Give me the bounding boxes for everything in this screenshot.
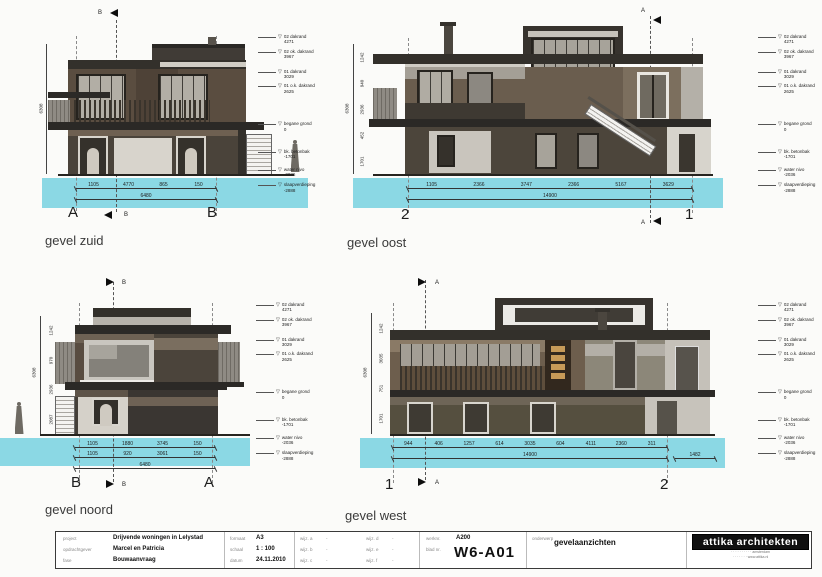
rev-f-value: - — [392, 558, 394, 563]
vertical-dim-line — [353, 44, 354, 174]
rev-f-label: wijz. f — [366, 558, 377, 563]
level-mark-icon: ▽ — [778, 83, 782, 89]
overall-height-dim: 6308 — [345, 103, 350, 113]
level-value: -2036 — [282, 440, 326, 445]
floor-slab — [65, 382, 227, 390]
worknr-value: A200 — [456, 535, 470, 541]
level-mark-icon: ▽ — [778, 317, 782, 323]
leader-line — [256, 320, 274, 321]
chimney — [208, 37, 216, 45]
level-annotation-row: ▽ begane grond0 — [256, 389, 326, 400]
leader-line — [758, 420, 776, 421]
dimension-line — [675, 458, 715, 459]
level-value: -1701 — [784, 422, 822, 427]
deck-line — [40, 434, 250, 436]
dimension-total-row: 14900 — [408, 193, 692, 200]
door — [675, 346, 699, 392]
level-mark-icon: ▽ — [278, 149, 282, 155]
level-mark-icon: ▽ — [278, 167, 282, 173]
level-mark-icon: ▽ — [276, 389, 280, 395]
leader-line — [758, 86, 776, 87]
level-annotation-row: ▽ 01 dakrand3029 — [258, 69, 328, 80]
level-value: 3967 — [284, 54, 328, 59]
level-annotation-row: ▽ 02 dakrand4271 — [758, 302, 822, 313]
leader-line — [256, 392, 274, 393]
level-annotation-row: ▽ bk. betonbak-1701 — [758, 417, 822, 428]
dimension-value: 452 — [359, 131, 364, 139]
level-mark-icon: ▽ — [276, 417, 280, 423]
sheet-number: W6-A01 — [454, 544, 515, 561]
floor-slab — [369, 119, 711, 127]
grid-number-right: 2 — [660, 476, 668, 493]
lower-window — [437, 135, 455, 167]
dimension-value: 1242 — [48, 326, 53, 336]
rev-c-value: - — [326, 558, 328, 563]
dimension-value: 751 — [378, 385, 383, 393]
wall-band — [154, 338, 218, 350]
rev-e-label: wijz. e — [366, 547, 379, 552]
balustrade — [400, 366, 545, 390]
wall-panel-light — [681, 67, 703, 121]
balcony-slats — [55, 342, 75, 384]
balcony-slats — [48, 100, 70, 124]
title-block: project Drijvende woningen in Lelystad o… — [55, 531, 812, 569]
level-value: 4271 — [284, 39, 328, 44]
leader-line — [758, 72, 776, 73]
balcony-door — [637, 72, 669, 121]
leader-line — [258, 124, 276, 125]
level-value: 0 — [784, 127, 822, 132]
rev-a-label: wijz. a — [300, 536, 313, 541]
level-annotation-row: ▽ water nivo-2036 — [758, 435, 822, 446]
stair — [55, 396, 75, 436]
level-mark-icon: ▽ — [778, 435, 782, 441]
dimension-value: 1242 — [378, 323, 383, 333]
level-value: 2625 — [784, 357, 822, 362]
dimension-value: 1701 — [378, 414, 383, 424]
leader-line — [256, 438, 274, 439]
dimension-line — [76, 188, 216, 189]
wall-panel-light — [114, 138, 172, 174]
rev-d-value: - — [392, 536, 394, 541]
leader-line — [258, 170, 276, 171]
vertical-dim-line — [371, 313, 372, 434]
leader-line — [758, 305, 776, 306]
level-value: 3029 — [784, 74, 822, 79]
glazing-strip — [400, 344, 540, 366]
leader-line — [258, 185, 276, 186]
dimension-line — [408, 199, 692, 200]
leader-line — [758, 453, 776, 454]
arched-door — [185, 148, 197, 174]
divider — [686, 532, 687, 568]
project-label: project — [63, 536, 77, 541]
level-mark-icon: ▽ — [278, 83, 282, 89]
door-light — [551, 355, 565, 361]
elevation-zuid: B B A B — [40, 8, 332, 258]
fascia — [160, 62, 246, 67]
wall-band — [128, 397, 218, 406]
elevation-west: A A 1 2 — [345, 278, 822, 533]
phase-value: Bouwaanvraag — [113, 557, 156, 563]
divider — [419, 532, 420, 568]
level-annotation-row: ▽ slaapverdieping-2888 — [758, 182, 822, 193]
leader-line — [758, 52, 776, 53]
level-value: 3967 — [282, 322, 326, 327]
rev-d-label: wijz. d — [366, 536, 379, 541]
door-light — [551, 373, 565, 379]
level-mark-icon: ▽ — [778, 121, 782, 127]
dimension-row: 110523663747236651673629 — [408, 182, 692, 189]
elevation-title: gevel oost — [347, 235, 406, 250]
leader-line — [758, 354, 776, 355]
arched-door — [100, 404, 112, 426]
date-value: 24.11.2010 — [256, 557, 286, 563]
level-annotation-row: ▽ 02 dakrand4271 — [258, 34, 328, 45]
level-value: -2888 — [784, 456, 822, 461]
level-value: 3967 — [784, 322, 822, 327]
leader-line — [258, 86, 276, 87]
section-letter-top: B — [98, 10, 102, 16]
chimney — [444, 26, 453, 54]
level-annotation-row: ▽ 02 ok. dakrand3967 — [758, 49, 822, 60]
level-annotation-row: ▽ slaapverdieping-2888 — [258, 182, 328, 193]
level-value: -2036 — [784, 172, 822, 177]
vertical-dim-line — [46, 44, 47, 174]
balcony-slats — [218, 342, 240, 384]
leader-line — [758, 392, 776, 393]
glass-reflection — [89, 345, 117, 359]
roof-band — [373, 54, 703, 64]
section-letter-bottom: B — [122, 482, 126, 488]
level-value: 2625 — [784, 89, 822, 94]
level-annotations: ▽ 02 dakrand4271 ▽ 02 ok. dakrand3967 ▽ … — [256, 302, 326, 461]
level-mark-icon: ▽ — [778, 450, 782, 456]
divider — [294, 532, 295, 568]
section-arrow-icon — [418, 278, 426, 286]
sheetnr-label: blad nr. — [426, 547, 441, 552]
leader-line — [758, 320, 776, 321]
subject-label: onderwerp — [532, 536, 553, 541]
door-light — [551, 364, 565, 370]
level-annotation-row: ▽ bk. betonbak-1701 — [758, 149, 822, 160]
level-annotations: ▽ 02 dakrand4271 ▽ 02 ok. dakrand3967 ▽ … — [758, 302, 822, 461]
vertical-dims: 124297029362087 — [46, 316, 55, 434]
level-value: 4271 — [282, 307, 326, 312]
grid-letter-left: B — [71, 474, 81, 491]
stair-box — [613, 340, 637, 390]
section-arrow-icon — [106, 278, 114, 286]
firm-name: attika architekten — [692, 534, 809, 550]
dimension-value: 3035 — [378, 353, 383, 363]
level-value: 3029 — [282, 342, 326, 347]
level-value: 3029 — [784, 342, 822, 347]
canopy-slab — [48, 92, 110, 98]
level-mark-icon: ▽ — [278, 69, 282, 75]
level-annotation-row: ▽ 02 ok. dakrand3967 — [258, 49, 328, 60]
floor-slab — [390, 390, 715, 397]
leader-line — [256, 420, 274, 421]
section-letter-top: A — [435, 280, 439, 286]
dimension-row: 11054770865150 — [76, 182, 216, 189]
deck-line — [390, 434, 715, 436]
level-value: -2036 — [284, 172, 328, 177]
scale-value: 1 : 100 — [256, 546, 275, 552]
leader-line — [758, 438, 776, 439]
level-annotation-row: ▽ 01 o.k. dakrand2625 — [758, 83, 822, 94]
lower-window — [407, 402, 433, 434]
leader-line — [256, 340, 274, 341]
wall-edge — [238, 130, 246, 176]
level-mark-icon: ▽ — [778, 302, 782, 308]
dimension-value: 970 — [48, 356, 53, 364]
level-annotation-row: ▽ water nivo-2036 — [758, 167, 822, 178]
phase-label: fase — [63, 558, 72, 563]
level-mark-icon: ▽ — [778, 69, 782, 75]
level-annotation-row: ▽ 02 dakrand4271 — [256, 302, 326, 313]
level-annotation-row: ▽ 01 dakrand3029 — [256, 337, 326, 348]
subject-value: gevelaanzichten — [554, 538, 616, 547]
divider — [224, 532, 225, 568]
elevation-title: gevel zuid — [45, 233, 104, 248]
leader-line — [258, 37, 276, 38]
overall-height-dim: 6308 — [39, 103, 44, 113]
level-value: -1701 — [784, 154, 822, 159]
leader-line — [758, 152, 776, 153]
level-value: 2625 — [284, 89, 328, 94]
vertical-dim-line — [40, 316, 41, 434]
worknr-label: werknr. — [426, 536, 441, 541]
dimension-total-row: 6480 — [76, 193, 216, 200]
client-label: opdrachtgever — [63, 547, 92, 552]
level-value: 0 — [284, 127, 328, 132]
leader-line — [256, 305, 274, 306]
level-mark-icon: ▽ — [278, 182, 282, 188]
section-arrow-icon — [110, 9, 118, 17]
elevation-oost: A A 2 1 — [345, 8, 822, 258]
level-mark-icon: ▽ — [778, 182, 782, 188]
section-letter-bottom: A — [641, 220, 645, 226]
leader-line — [758, 185, 776, 186]
roof-band-light — [93, 317, 191, 325]
roof-edge — [152, 44, 245, 48]
level-value: -1701 — [282, 422, 326, 427]
level-annotation-row: ▽ 01 dakrand3029 — [758, 337, 822, 348]
firm-block: attika architekten · · · · · · · · · · a… — [692, 534, 809, 559]
dimension-line — [75, 457, 215, 458]
level-mark-icon: ▽ — [778, 417, 782, 423]
level-annotation-row: ▽ begane grond0 — [758, 389, 822, 400]
lower-window — [535, 133, 557, 169]
dimension-value: 2936 — [359, 104, 364, 114]
level-mark-icon: ▽ — [778, 337, 782, 343]
level-annotations: ▽ 02 dakrand4271 ▽ 02 ok. dakrand3967 ▽ … — [258, 34, 328, 193]
level-annotation-row: ▽ slaapverdieping-2888 — [256, 450, 326, 461]
dimension-line — [393, 447, 667, 448]
dimension-total-row: 6480 — [75, 462, 215, 469]
vertical-dims: 124230357511701 — [376, 313, 385, 434]
level-value: -2888 — [282, 456, 326, 461]
elevation-title: gevel noord — [45, 502, 113, 517]
level-mark-icon: ▽ — [778, 49, 782, 55]
level-annotation-row: ▽ begane grond0 — [258, 121, 328, 132]
dimension-value: 1242 — [359, 52, 364, 62]
dimension-value: 2936 — [48, 385, 53, 395]
section-letter-top: B — [122, 280, 126, 286]
level-mark-icon: ▽ — [778, 351, 782, 357]
roof-box — [93, 308, 191, 317]
grid-number-left: 1 — [385, 476, 393, 493]
leader-line — [758, 170, 776, 171]
rev-b-value: - — [326, 547, 328, 552]
door-light — [551, 346, 565, 352]
level-annotation-row: ▽ bk. betonbak-1701 — [256, 417, 326, 428]
overall-height-dim: 6308 — [32, 367, 37, 377]
section-letter-top: A — [641, 8, 645, 14]
scale-label: schaal — [230, 547, 243, 552]
rev-b-label: wijz. b — [300, 547, 313, 552]
dimension-extra: 1482 — [675, 452, 715, 459]
level-annotation-row: ▽ water nivo-2036 — [258, 167, 328, 178]
level-annotations: ▽ 02 dakrand4271 ▽ 02 ok. dakrand3967 ▽ … — [758, 34, 822, 193]
level-annotation-row: ▽ 02 dakrand4271 — [758, 34, 822, 45]
lower-door — [677, 132, 697, 174]
dimension-total-row: 14900 — [393, 452, 667, 459]
level-mark-icon: ▽ — [276, 337, 280, 343]
level-value: 0 — [784, 395, 822, 400]
level-annotation-row: ▽ begane grond0 — [758, 121, 822, 132]
level-mark-icon: ▽ — [278, 49, 282, 55]
person-figure — [14, 402, 24, 434]
level-mark-icon: ▽ — [778, 34, 782, 40]
dimension-line — [408, 188, 692, 189]
lower-window — [530, 402, 556, 434]
level-mark-icon: ▽ — [276, 351, 280, 357]
level-value: 4271 — [784, 39, 822, 44]
level-value: -2036 — [784, 440, 822, 445]
divider — [526, 532, 527, 568]
dimension-line — [75, 447, 215, 448]
leader-line — [758, 124, 776, 125]
vertical-dims: 124294029364521701 — [357, 44, 366, 174]
drawing-sheet: B B A B — [0, 0, 822, 577]
level-annotation-row: ▽ 01 o.k. dakrand2625 — [256, 351, 326, 362]
level-annotation-row: ▽ 01 o.k. dakrand2625 — [258, 83, 328, 94]
dimension-value: 2087 — [48, 414, 53, 424]
level-mark-icon: ▽ — [276, 435, 280, 441]
leader-line — [256, 354, 274, 355]
level-annotation-row: ▽ 01 dakrand3029 — [758, 69, 822, 80]
lower-window — [463, 402, 489, 434]
rev-c-label: wijz. c — [300, 558, 312, 563]
section-arrow-icon — [418, 478, 426, 486]
level-annotation-row: ▽ 02 ok. dakrand3967 — [256, 317, 326, 328]
firm-address-line2: · · · · · · · www.attika.nl — [692, 555, 809, 560]
level-mark-icon: ▽ — [278, 121, 282, 127]
level-value: 3967 — [784, 54, 822, 59]
rev-e-value: - — [392, 547, 394, 552]
elevation-noord: B B B A — [0, 278, 338, 533]
balcony-slats — [373, 88, 397, 120]
level-mark-icon: ▽ — [278, 34, 282, 40]
client-value: Marcel en Patricia — [113, 546, 164, 552]
grid-number-right: 1 — [685, 206, 693, 223]
level-value: -1701 — [284, 154, 328, 159]
leader-line — [258, 152, 276, 153]
balustrade — [74, 100, 210, 124]
dimension-row: 110518803745150 — [75, 441, 215, 448]
leader-line — [758, 340, 776, 341]
chimney — [598, 312, 607, 330]
dimension-row: 11059203061150 — [75, 451, 215, 458]
rev-a-value: - — [326, 536, 328, 541]
elevation-title: gevel west — [345, 508, 406, 523]
dimension-line — [393, 458, 667, 459]
section-arrow-icon — [653, 16, 661, 24]
section-arrow-icon — [653, 217, 661, 225]
clerestory-band — [528, 31, 618, 37]
level-mark-icon: ▽ — [276, 450, 280, 456]
wall-panel-light — [645, 397, 710, 436]
leader-line — [258, 72, 276, 73]
arched-door — [87, 148, 99, 174]
level-annotation-row: ▽ slaapverdieping-2888 — [758, 450, 822, 461]
section-arrow-icon — [104, 211, 112, 219]
leader-line — [256, 453, 274, 454]
lower-window — [577, 133, 599, 169]
section-letter-bottom: B — [124, 212, 128, 218]
grid-letter-right: B — [207, 204, 217, 221]
grid-number-left: 2 — [401, 206, 409, 223]
section-arrow-icon — [106, 480, 114, 488]
level-value: -2888 — [784, 188, 822, 193]
roof-band — [390, 330, 710, 340]
level-annotation-row: ▽ bk. betonbak-1701 — [258, 149, 328, 160]
level-mark-icon: ▽ — [276, 317, 280, 323]
grid-letter-left: A — [68, 204, 78, 221]
level-annotation-row: ▽ 02 ok. dakrand3967 — [758, 317, 822, 328]
overall-height-dim: 6308 — [363, 367, 368, 377]
dimension-row: 9444061257614303560441112360311 — [393, 441, 667, 448]
deck-line — [373, 174, 713, 176]
level-value: 0 — [282, 395, 326, 400]
dimension-value: 940 — [359, 79, 364, 87]
format-value: A3 — [256, 535, 264, 541]
level-mark-icon: ▽ — [778, 167, 782, 173]
dimension-line — [76, 199, 216, 200]
project-value: Drijvende woningen in Lelystad — [113, 535, 203, 541]
leader-line — [258, 52, 276, 53]
level-annotation-row: ▽ 01 o.k. dakrand2625 — [758, 351, 822, 362]
grid-letter-right: A — [204, 474, 214, 491]
level-value: 4271 — [784, 307, 822, 312]
level-mark-icon: ▽ — [778, 149, 782, 155]
roof-slab — [75, 325, 231, 334]
level-value: 2625 — [282, 357, 326, 362]
floor-slab — [48, 122, 264, 130]
level-value: -2888 — [284, 188, 328, 193]
format-label: formaat — [230, 536, 245, 541]
level-mark-icon: ▽ — [778, 389, 782, 395]
section-letter-bottom: A — [435, 480, 439, 486]
dimension-line — [75, 468, 215, 469]
date-label: datum — [230, 558, 243, 563]
level-annotation-row: ▽ water nivo-2036 — [256, 435, 326, 446]
dimension-value: 1701 — [359, 156, 364, 166]
level-mark-icon: ▽ — [276, 302, 280, 308]
level-value: 3029 — [284, 74, 328, 79]
parapet-inner — [515, 308, 633, 322]
